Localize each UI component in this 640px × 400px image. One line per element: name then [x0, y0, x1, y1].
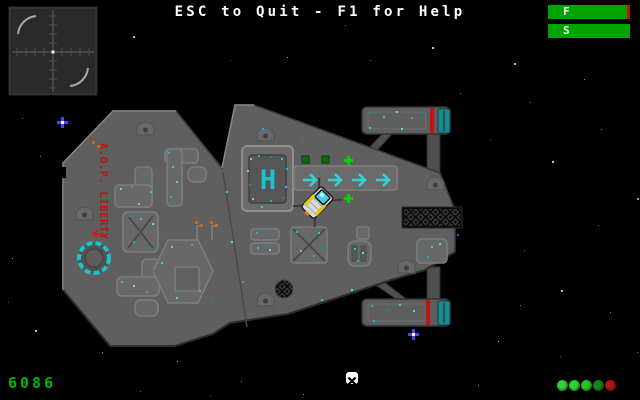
- hull-light: [176, 181, 178, 183]
- game-viewport[interactable]: H A.O.P. LIBERTY: [0, 0, 640, 400]
- shield-bar-label: S: [563, 24, 570, 38]
- hull-light: [258, 155, 260, 157]
- hull-light: [261, 206, 263, 208]
- fuel-bar: F: [548, 5, 630, 19]
- score-readout: 6086: [8, 374, 56, 392]
- hull-light: [148, 247, 150, 249]
- shield-bar-fill: [548, 24, 630, 38]
- hull-light: [421, 112, 423, 114]
- hull-light: [370, 112, 372, 114]
- hull-light: [262, 128, 264, 130]
- hull-light: [413, 310, 415, 312]
- fuel-bar-fill: [548, 5, 627, 19]
- hull-light: [270, 156, 272, 158]
- status-led: [605, 380, 616, 391]
- hull-light: [266, 234, 268, 236]
- status-led: [557, 380, 568, 391]
- hull-light: [401, 128, 403, 130]
- hull-light: [351, 289, 353, 291]
- hull-light: [396, 111, 398, 113]
- hull-light: [318, 232, 320, 234]
- status-led: [569, 380, 580, 391]
- hull-light: [199, 290, 201, 292]
- radar-center-dot: [52, 51, 55, 54]
- hull-light: [131, 186, 133, 188]
- hull-light: [269, 249, 271, 251]
- hull-light: [422, 243, 424, 245]
- hull-light: [300, 250, 302, 252]
- hull-light: [321, 247, 323, 249]
- hull-light: [133, 241, 135, 243]
- hull-light: [170, 196, 172, 198]
- nacelle-stripe: [426, 300, 430, 325]
- hull-light: [191, 244, 193, 246]
- status-led: [581, 380, 592, 391]
- hull-light: [172, 166, 174, 168]
- nacelle-stripe: [430, 108, 434, 133]
- hull-light: [369, 127, 371, 129]
- hull-light: [306, 236, 308, 238]
- hull-light: [357, 260, 359, 262]
- hull-light: [152, 223, 154, 225]
- hull-light: [212, 300, 214, 302]
- status-lights: [557, 380, 616, 391]
- hull-light: [146, 291, 148, 293]
- hull-light: [373, 320, 375, 322]
- hull-light: [226, 191, 228, 193]
- hull-light: [150, 191, 152, 193]
- hull-light: [301, 141, 303, 143]
- hull-light: [256, 232, 258, 234]
- hull-light: [386, 309, 388, 311]
- hull-light: [120, 188, 122, 190]
- hull-light: [138, 203, 140, 205]
- hull-light: [145, 175, 147, 177]
- hull-light: [383, 116, 385, 118]
- hull-light: [252, 198, 254, 200]
- hull-light: [121, 281, 123, 283]
- runway-strip: [294, 166, 397, 190]
- hull-light: [180, 155, 182, 157]
- helipad-letter: H: [260, 165, 276, 196]
- hull-light: [285, 186, 287, 188]
- hull-light: [371, 305, 373, 307]
- hull-light: [321, 299, 323, 301]
- hull-light: [128, 215, 130, 217]
- hull-light: [406, 319, 408, 321]
- hull-light: [354, 248, 356, 250]
- hull-light: [249, 184, 251, 186]
- hull-light: [161, 262, 163, 264]
- hull-light: [231, 241, 233, 243]
- hull-light: [133, 285, 135, 287]
- hull-light: [168, 152, 170, 154]
- hull-light: [282, 197, 284, 199]
- hull-light: [140, 218, 142, 220]
- hull-light: [286, 168, 288, 170]
- hull-light: [247, 170, 249, 172]
- radar-display: [8, 6, 98, 96]
- helipad[interactable]: H: [242, 146, 293, 211]
- hull-light: [411, 117, 413, 119]
- hull-light: [427, 256, 429, 258]
- hull-light: [270, 200, 272, 202]
- waypoint-marker-icon: [346, 372, 358, 384]
- status-led: [593, 380, 604, 391]
- hull-light: [431, 246, 433, 248]
- hull-light: [257, 247, 259, 249]
- hull-light: [362, 252, 364, 254]
- exhaust-grate: [402, 207, 462, 228]
- shield-bar: S: [548, 24, 630, 38]
- hull-light: [313, 255, 315, 257]
- hull-light: [205, 258, 207, 260]
- help-text: ESC to Quit - F1 for Help: [175, 4, 466, 20]
- hull-light: [152, 270, 154, 272]
- hull-light: [399, 304, 401, 306]
- hull-light: [296, 231, 298, 233]
- hatched-port: [275, 280, 293, 298]
- hull-light: [171, 246, 173, 248]
- fuel-bar-label: F: [563, 5, 570, 19]
- hull-light: [176, 297, 178, 299]
- hull-light: [242, 281, 244, 283]
- station-name-label: A.O.P. LIBERTY: [97, 143, 109, 240]
- hull-light: [250, 158, 252, 160]
- hull-light: [281, 158, 283, 160]
- hull-light: [439, 243, 441, 245]
